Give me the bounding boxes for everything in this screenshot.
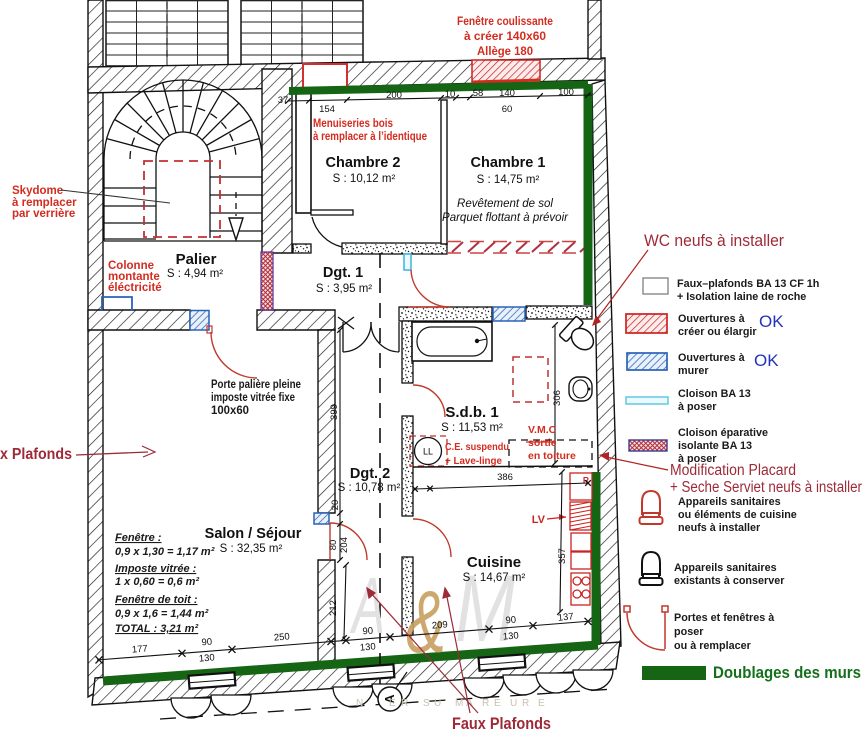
svg-text:Portes et fenêtres à: Portes et fenêtres à <box>674 612 775 624</box>
svg-text:E: E <box>494 698 501 709</box>
svg-text:137: 137 <box>557 611 574 624</box>
svg-text:58: 58 <box>473 88 484 99</box>
svg-text:Palier: Palier <box>176 251 217 268</box>
svg-text:Fenêtre coulissante: Fenêtre coulissante <box>457 14 553 28</box>
svg-text:LL: LL <box>423 447 433 457</box>
svg-text:à poser: à poser <box>678 401 717 413</box>
svg-text:ou à remplacer: ou à remplacer <box>674 640 752 652</box>
svg-text:S: S <box>423 698 430 709</box>
svg-text:U: U <box>510 698 517 709</box>
svg-text:80: 80 <box>328 540 339 551</box>
svg-text:306: 306 <box>552 390 563 406</box>
svg-text:130: 130 <box>502 630 519 642</box>
svg-text:200: 200 <box>386 90 402 101</box>
svg-text:à créer 140x60: à créer 140x60 <box>464 29 546 43</box>
svg-text:S : 14,67 m²: S : 14,67 m² <box>463 572 526 584</box>
svg-text:Revêtement de sol: Revêtement de sol <box>457 198 553 210</box>
svg-text:Porte palière pleine: Porte palière pleine <box>211 379 301 391</box>
svg-text:LV: LV <box>532 514 546 526</box>
svg-text:177: 177 <box>131 643 148 655</box>
svg-text:Skydome: Skydome <box>12 185 63 197</box>
svg-text:N: N <box>356 698 363 709</box>
svg-text:S : 10,12 m²: S : 10,12 m² <box>333 173 396 185</box>
svg-text:Appareils sanitaires: Appareils sanitaires <box>674 562 777 574</box>
svg-text:x Plafonds: x Plafonds <box>0 446 72 463</box>
svg-text:V.M.C: V.M.C <box>528 424 557 436</box>
svg-text:+ Seche Serviet neufs à instal: + Seche Serviet neufs à installer <box>670 479 862 496</box>
svg-text:60: 60 <box>502 104 513 115</box>
svg-text:Doublages des murs: Doublages des murs <box>713 664 861 682</box>
svg-text:WC neufs à installer: WC neufs à installer <box>644 232 784 250</box>
svg-text:en toiture: en toiture <box>528 450 576 462</box>
svg-text:Dgt. 1: Dgt. 1 <box>323 265 363 281</box>
svg-text:S : 4,94 m²: S : 4,94 m² <box>167 268 223 280</box>
svg-text:20: 20 <box>330 500 341 511</box>
svg-text:Chambre 2: Chambre 2 <box>326 155 401 171</box>
svg-text:éléctricité: éléctricité <box>108 282 162 294</box>
svg-text:Fenêtre :: Fenêtre : <box>115 532 162 544</box>
svg-text:U: U <box>434 698 441 709</box>
svg-text:E: E <box>389 698 396 709</box>
svg-text:ou éléments de cuisine: ou éléments de cuisine <box>678 509 797 521</box>
svg-text:140: 140 <box>499 88 515 99</box>
svg-text:37: 37 <box>278 95 289 106</box>
svg-text:357: 357 <box>557 548 568 564</box>
svg-text:204: 204 <box>339 537 350 553</box>
svg-text:OK: OK <box>759 312 784 331</box>
svg-text:100x60: 100x60 <box>211 405 249 417</box>
svg-text:90: 90 <box>201 637 212 649</box>
svg-text:Salon / Séjour: Salon / Séjour <box>205 526 302 542</box>
svg-text:R: R <box>522 698 529 709</box>
svg-text:isolante BA 13: isolante BA 13 <box>678 440 752 452</box>
svg-text:212: 212 <box>328 600 339 616</box>
svg-text:Cloison BA 13: Cloison BA 13 <box>678 388 751 400</box>
svg-text:Cloison éparative: Cloison éparative <box>678 427 768 439</box>
svg-text:Chambre 1: Chambre 1 <box>471 155 546 171</box>
svg-text:S : 32,35 m²: S : 32,35 m² <box>220 543 283 555</box>
svg-text:Ouvertures à: Ouvertures à <box>678 313 746 325</box>
svg-text:386: 386 <box>497 472 513 483</box>
svg-text:250: 250 <box>273 631 290 643</box>
svg-text:C.E. suspendu: C.E. suspendu <box>445 441 509 453</box>
svg-text:+ Lave-linge: + Lave-linge <box>445 455 502 467</box>
svg-text:imposte vitrée fixe: imposte vitrée fixe <box>211 392 295 404</box>
svg-text:créer ou élargir: créer ou élargir <box>678 326 757 338</box>
svg-text:Modification Placard: Modification Placard <box>670 462 796 479</box>
svg-text:Ouvertures à: Ouvertures à <box>678 352 746 364</box>
svg-text:S : 3,95 m²: S : 3,95 m² <box>316 283 372 295</box>
svg-text:Parquet flottant à prévoir: Parquet flottant à prévoir <box>442 212 569 224</box>
svg-text:neufs à installer: neufs à installer <box>678 522 761 534</box>
svg-text:Menuiseries bois: Menuiseries bois <box>313 116 393 130</box>
svg-text:R: R <box>482 698 489 709</box>
svg-text:murer: murer <box>678 365 709 377</box>
svg-text:10: 10 <box>445 89 456 100</box>
svg-text:S : 10,78 m²: S : 10,78 m² <box>338 482 401 494</box>
svg-text:Faux–plafonds BA 13 CF 1h: Faux–plafonds BA 13 CF 1h <box>677 278 819 290</box>
svg-text:90: 90 <box>362 626 373 638</box>
svg-text:S : 11,53 m²: S : 11,53 m² <box>441 422 503 434</box>
svg-text:154: 154 <box>319 104 335 115</box>
svg-text:399: 399 <box>329 404 340 420</box>
svg-text:0,9 x 1,6 = 1,44 m²: 0,9 x 1,6 = 1,44 m² <box>115 608 209 620</box>
svg-text:0,9 x 1,30 = 1,17 m²: 0,9 x 1,30 = 1,17 m² <box>115 546 215 558</box>
svg-text:S.d.b. 1: S.d.b. 1 <box>445 404 498 421</box>
svg-text:100: 100 <box>558 87 574 98</box>
svg-text:R: R <box>401 698 408 709</box>
svg-text:par verrière: par verrière <box>12 208 75 220</box>
svg-text:TOTAL : 3,21 m²: TOTAL : 3,21 m² <box>115 623 198 635</box>
svg-text:Fenêtre de toit :: Fenêtre de toit : <box>115 594 198 606</box>
svg-text:M: M <box>455 698 463 709</box>
svg-text:+ Isolation laine de roche: + Isolation laine de roche <box>677 291 806 303</box>
svg-text:130: 130 <box>359 641 376 653</box>
svg-text:poser: poser <box>674 626 704 638</box>
svg-text:Dgt. 2: Dgt. 2 <box>350 466 390 482</box>
svg-text:existants à conserver: existants à conserver <box>674 575 785 587</box>
svg-text:à remplacer à l’identique: à remplacer à l’identique <box>313 129 427 143</box>
svg-text:Appareils sanitaires: Appareils sanitaires <box>678 496 781 508</box>
svg-text:209: 209 <box>431 619 448 631</box>
svg-text:Allège 180: Allège 180 <box>477 44 533 58</box>
svg-text:Faux Plafonds: Faux Plafonds <box>452 715 551 733</box>
svg-text:130: 130 <box>198 652 215 664</box>
svg-text:90: 90 <box>505 615 516 627</box>
svg-text:Cuisine: Cuisine <box>467 554 521 571</box>
svg-text:E: E <box>538 698 545 709</box>
svg-text:OK: OK <box>754 351 779 370</box>
svg-text:Imposte vitrée :: Imposte vitrée : <box>115 563 197 575</box>
svg-text:S : 14,75 m²: S : 14,75 m² <box>477 174 540 186</box>
svg-text:sortie: sortie <box>528 437 557 449</box>
svg-text:1 x 0,60 = 0,6 m²: 1 x 0,60 = 0,6 m² <box>115 576 199 588</box>
